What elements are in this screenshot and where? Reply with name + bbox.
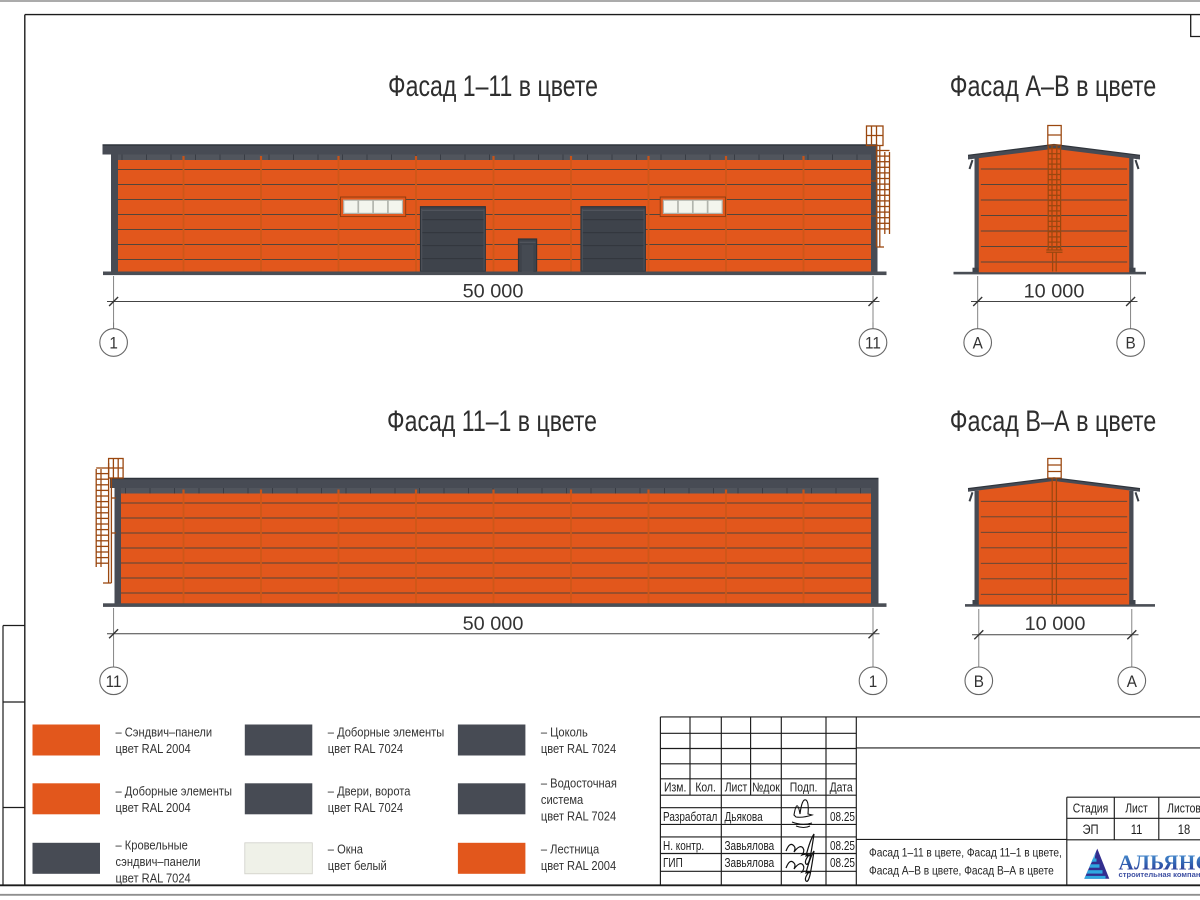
svg-text:цвет RAL 7024: цвет RAL 7024: [541, 741, 617, 756]
svg-text:Изм.: Изм.: [664, 780, 686, 794]
svg-text:Дата: Дата: [830, 780, 853, 794]
svg-text:Лист: Лист: [1125, 801, 1148, 815]
svg-text:цвет RAL 2004: цвет RAL 2004: [541, 858, 617, 873]
svg-text:система: система: [541, 792, 584, 807]
svg-text:– Цоколь: – Цоколь: [541, 725, 588, 740]
svg-text:10 000: 10 000: [1024, 281, 1085, 303]
svg-text:Фасад А–В в цвете, Фасад В–А в: Фасад А–В в цвете, Фасад В–А в цвете: [869, 865, 1054, 878]
svg-text:Дьякова: Дьякова: [725, 811, 764, 824]
svg-text:Фасад 11–1 в цвете: Фасад 11–1 в цвете: [387, 404, 597, 438]
svg-text:цвет RAL 7024: цвет RAL 7024: [541, 809, 617, 824]
svg-text:50 000: 50 000: [463, 281, 524, 303]
svg-text:11: 11: [106, 672, 122, 691]
svg-text:– Доборные элементы: – Доборные элементы: [328, 725, 444, 740]
svg-text:Н. контр.: Н. контр.: [663, 840, 704, 853]
svg-text:11: 11: [865, 334, 881, 353]
svg-text:Листов: Листов: [1167, 801, 1200, 815]
svg-text:Подп.: Подп.: [790, 780, 818, 794]
svg-text:А: А: [1127, 672, 1137, 691]
svg-text:Завьялова: Завьялова: [725, 840, 775, 853]
svg-text:08.25: 08.25: [830, 811, 855, 824]
svg-text:08.25: 08.25: [830, 840, 855, 853]
svg-text:– Сэндвич–панели: – Сэндвич–панели: [116, 725, 213, 740]
svg-text:цвет RAL 7024: цвет RAL 7024: [328, 741, 404, 756]
svg-text:Лист: Лист: [725, 780, 748, 794]
svg-text:Фасад 1–11 в цвете: Фасад 1–11 в цвете: [388, 69, 598, 103]
svg-text:18: 18: [1178, 822, 1190, 837]
svg-text:Фасад В–А в цвете: Фасад В–А в цвете: [950, 404, 1157, 437]
svg-text:цвет RAL 2004: цвет RAL 2004: [116, 800, 192, 815]
svg-text:строительная компания: строительная компания: [1119, 870, 1200, 879]
svg-text:10 000: 10 000: [1025, 613, 1086, 635]
svg-text:11: 11: [1131, 822, 1143, 837]
svg-text:– Окна: – Окна: [328, 842, 363, 857]
svg-text:1: 1: [109, 334, 118, 353]
svg-text:Разработал: Разработал: [663, 811, 717, 824]
svg-text:В: В: [1126, 334, 1136, 353]
svg-text:ГИП: ГИП: [663, 857, 683, 870]
svg-text:Кол.: Кол.: [695, 780, 716, 794]
svg-text:– Лестница: – Лестница: [541, 842, 600, 857]
svg-text:Фасад А–В в цвете: Фасад А–В в цвете: [950, 69, 1157, 102]
svg-text:ЭП: ЭП: [1082, 822, 1098, 837]
svg-text:№док: №док: [752, 780, 780, 794]
svg-text:– Водосточная: – Водосточная: [541, 776, 617, 791]
svg-text:08.25: 08.25: [830, 857, 855, 870]
svg-text:А: А: [973, 334, 983, 353]
svg-text:50 000: 50 000: [463, 613, 524, 635]
svg-text:цвет RAL 7024: цвет RAL 7024: [116, 871, 192, 886]
svg-text:сэндвич–панели: сэндвич–панели: [116, 854, 201, 869]
svg-text:цвет RAL 2004: цвет RAL 2004: [116, 741, 192, 756]
svg-text:– Двери, ворота: – Двери, ворота: [328, 784, 411, 799]
svg-text:цвет белый: цвет белый: [328, 858, 387, 873]
svg-text:– Доборные элементы: – Доборные элементы: [116, 784, 232, 799]
svg-text:цвет RAL 7024: цвет RAL 7024: [328, 800, 404, 815]
svg-text:В: В: [974, 672, 984, 691]
svg-text:Фасад 1–11 в цвете, Фасад 11–1: Фасад 1–11 в цвете, Фасад 11–1 в цвете,: [869, 847, 1062, 860]
svg-text:Завьялова: Завьялова: [725, 857, 775, 870]
svg-text:– Кровельные: – Кровельные: [116, 838, 189, 853]
svg-text:1: 1: [869, 672, 878, 691]
svg-text:Стадия: Стадия: [1073, 801, 1108, 815]
